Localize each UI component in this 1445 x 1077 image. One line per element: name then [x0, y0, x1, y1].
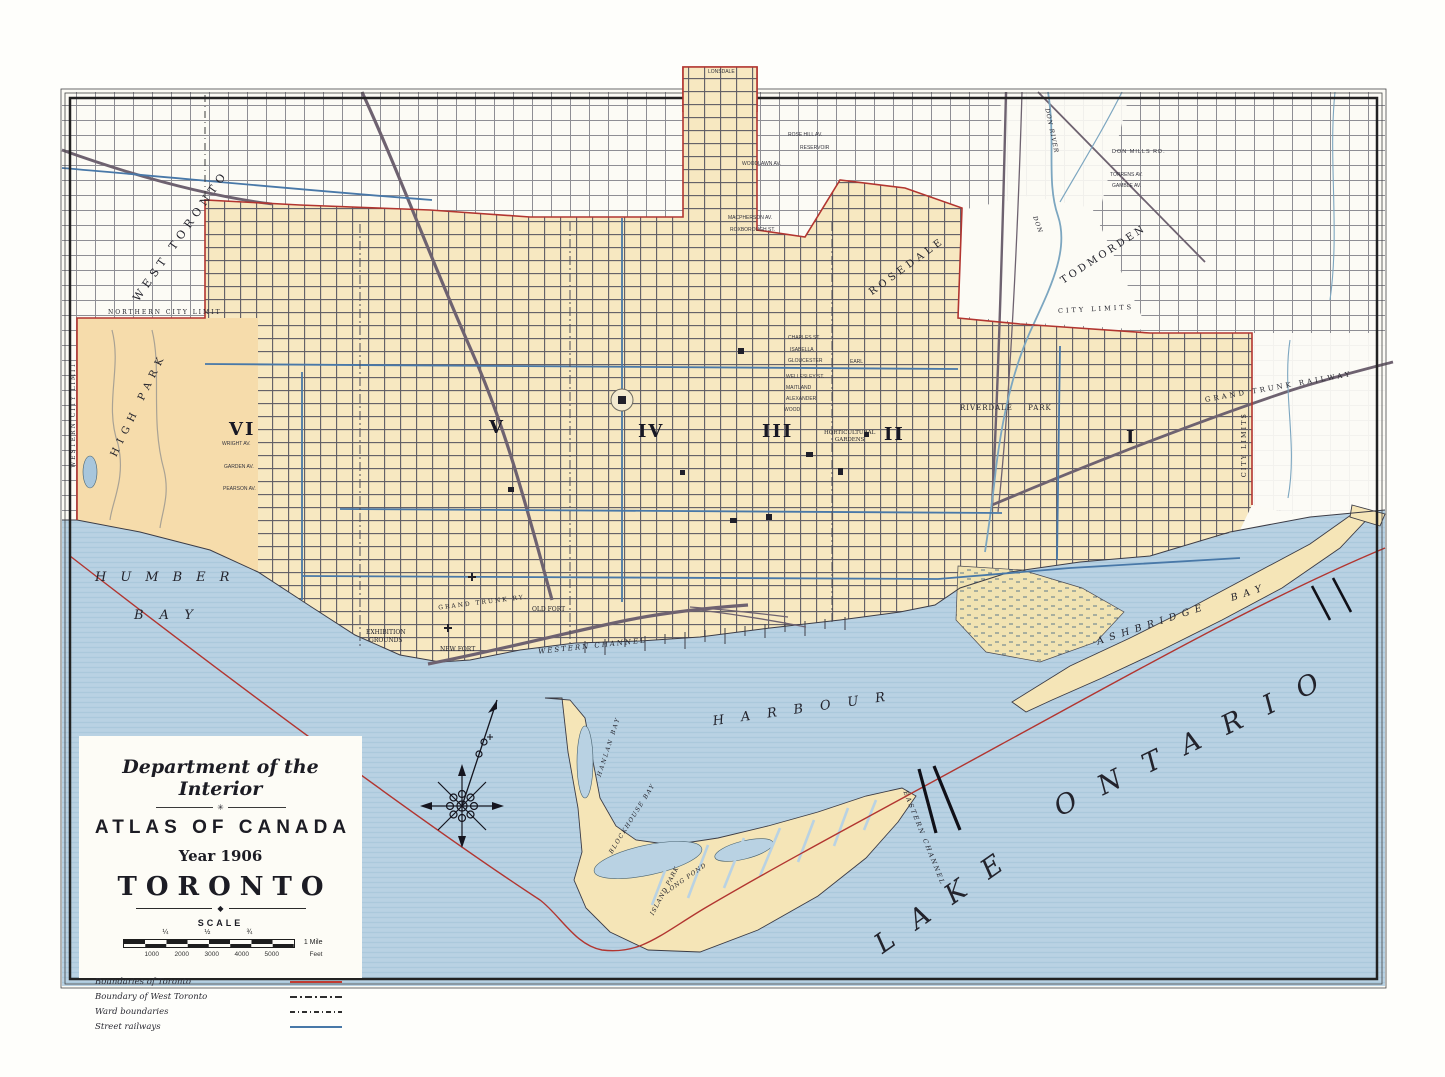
label-old-fort: OLD FORT [532, 607, 565, 613]
horticultural-line1: HORTICULTURAL [824, 430, 875, 436]
street-garden: GARDEN AV. [224, 465, 254, 470]
legend-row-west-toronto-boundary: Boundary of West Toronto [79, 992, 362, 1002]
ward-V-numeral: V [489, 417, 505, 438]
year-label: Year 1906 [79, 847, 362, 865]
legend-row-street-railways: Street railways [79, 1022, 362, 1032]
street-earl: EARL [850, 360, 863, 365]
feet-3000: 3000 [205, 951, 219, 958]
ward-VI-numeral: VI [229, 419, 255, 440]
red-line-swatch-icon [290, 981, 342, 984]
street-isabella: ISABELLA [790, 348, 814, 353]
feet-2000: 2000 [175, 951, 189, 958]
east-open-land [1252, 333, 1385, 517]
legend: Boundaries of Toronto Boundary of West T… [79, 977, 362, 1032]
exhibition-line1: EXHIBITION [366, 629, 406, 636]
grenadier-pond [83, 456, 97, 488]
ward-IV-numeral: IV [638, 421, 664, 442]
scale-heading: SCALE [79, 918, 362, 928]
department-title: Department of the Interior [79, 756, 362, 800]
legend-label: Ward boundaries [79, 1007, 290, 1017]
scale-tick-three-quarter: ¾ [247, 929, 253, 936]
label-humber-bay: BAY [134, 609, 209, 622]
feet-5000: 5000 [265, 951, 279, 958]
street-alexander: ALEXANDER [786, 397, 816, 402]
label-western-limit: WESTERN CITY LIMIT [71, 388, 77, 468]
dash-dot-line-swatch-icon [290, 1011, 342, 1013]
atlas-title: ATLAS OF CANADA [79, 817, 362, 839]
street-rose-hill: ROSE HILL AV. [788, 133, 822, 138]
street-lonsdale: LONSDALE [708, 70, 735, 75]
cartouche-divider-bottom: ◆ [136, 904, 306, 913]
street-torrens: TORRENS AV. [1110, 173, 1143, 178]
star-ornament-icon: ✳ [213, 803, 228, 812]
label-northern-limit: NORTHERN CITY LIMIT [108, 310, 222, 316]
ward-I-numeral: I [1126, 427, 1136, 448]
city-title: TORONTO [79, 872, 362, 902]
mile-scale-bar [123, 939, 295, 948]
legend-label: Boundary of West Toronto [79, 992, 290, 1002]
dash-line-swatch-icon [290, 996, 342, 999]
street-gamble: GAMBLE AV. [1112, 184, 1141, 189]
label-city-limits-east: CITY LIMITS [1241, 417, 1248, 477]
street-maitland: MAITLAND [786, 386, 811, 391]
cartouche-divider-top: ✳ [156, 803, 286, 812]
street-charles: CHARLES ST. [788, 336, 820, 341]
street-pearson: PEARSON AV. [223, 487, 256, 492]
horticultural-line2: GARDENS [835, 437, 865, 443]
legend-row-toronto-boundary: Boundaries of Toronto [79, 977, 362, 987]
scale-bar: ¼ ½ ¾ 1 Mile 1000 2000 3000 4000 5000 Fe… [119, 929, 323, 969]
ward-II-numeral: II [884, 424, 905, 445]
feet-4000: 4000 [235, 951, 249, 958]
street-gloucester: GLOUCESTER [788, 359, 822, 364]
legend-label: Boundaries of Toronto [79, 977, 290, 987]
street-don-mills: DON MILLS RD. [1112, 150, 1166, 156]
scale-tick-quarter: ¼ [163, 929, 169, 936]
street-wright: WRIGHT AV. [222, 442, 251, 447]
blue-line-swatch-icon [290, 1026, 342, 1029]
label-new-fort: NEW FORT [440, 647, 475, 653]
title-cartouche: Department of the Interior ✳ ATLAS OF CA… [79, 736, 362, 978]
street-wellesley: WELLESLEY ST. [786, 375, 824, 380]
scale-tick-half: ½ [205, 929, 211, 936]
exhibition-line2: GROUNDS [369, 637, 402, 644]
street-reservoir: RESERVOIR [800, 146, 829, 151]
scale-mile-end: 1 Mile [304, 939, 323, 946]
label-humber: HUMBER [95, 571, 243, 584]
toronto-1906-map: I II III IV V VI HUMBER BAY HARBOUR ASHB… [0, 0, 1445, 1077]
feet-1000: 1000 [145, 951, 159, 958]
label-riverdale-park: RIVERDALE PARK [960, 405, 1052, 412]
legend-label: Street railways [79, 1022, 290, 1032]
street-roxborough: ROXBOROUGH ST. [730, 228, 775, 233]
street-woodlawn: WOODLAWN AV. [742, 162, 781, 167]
street-wood: WOOD [784, 408, 800, 413]
diamond-ornament-icon: ◆ [212, 904, 228, 913]
ward-III-numeral: III [762, 421, 793, 442]
label-exhibition-grounds: EXHIBITION GROUNDS [366, 629, 406, 645]
street-macpherson: MACPHERSON AV. [728, 216, 772, 221]
legend-row-ward-boundaries: Ward boundaries [79, 1007, 362, 1017]
label-horticultural-gardens: HORTICULTURAL GARDENS [824, 430, 875, 444]
scale-feet-end: Feet [309, 951, 322, 958]
